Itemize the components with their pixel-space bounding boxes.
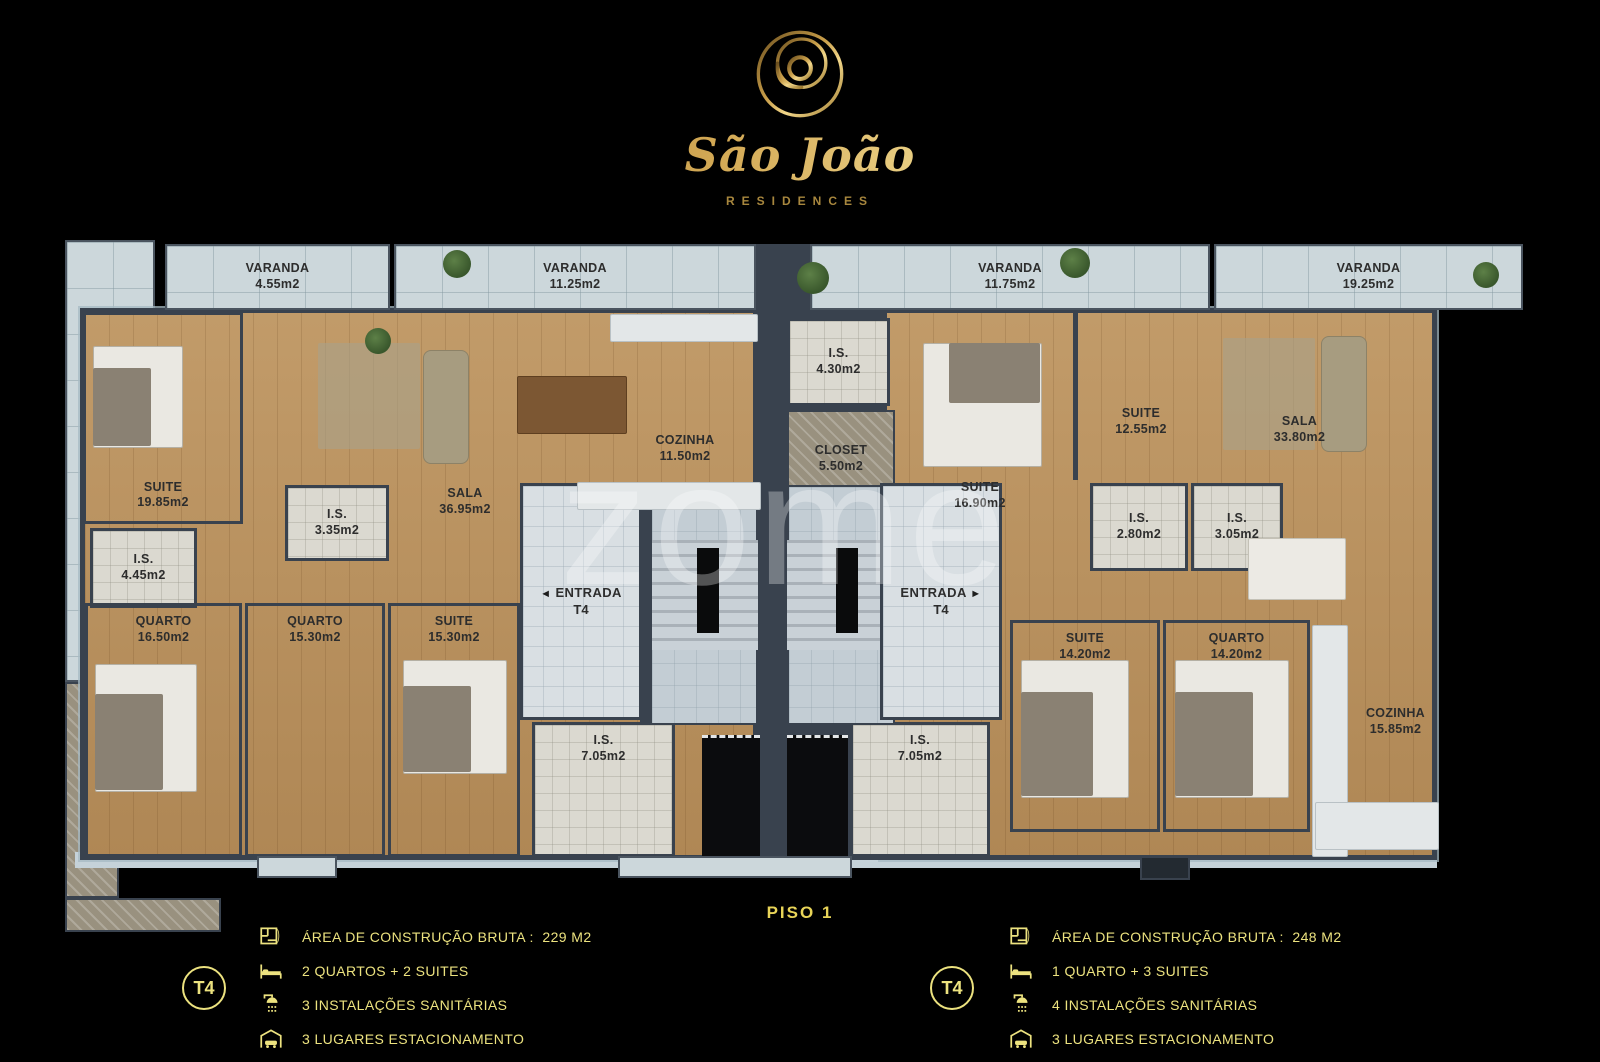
entrance-label: ENTRADA (900, 585, 966, 600)
room-name: SALA (447, 486, 482, 502)
room-is-445: I.S.4.45m2 (90, 528, 197, 608)
bed-icon (1008, 958, 1034, 984)
entrance-unit: T4 (573, 602, 588, 618)
room-area: 7.05m2 (898, 749, 942, 765)
legend-left: ÁREA DE CONSTRUÇÃO BRUTA : 229 M2 2 QUAR… (258, 924, 592, 1060)
bed-blanket (1175, 692, 1253, 796)
legend-text: 2 QUARTOS + 2 SUITES (302, 963, 469, 979)
legend-item: 4 INSTALAÇÕES SANITÁRIAS (1008, 992, 1342, 1018)
room-area: 7.05m2 (581, 749, 625, 765)
room-name: I.S. (829, 346, 849, 362)
dining-table (1248, 538, 1346, 600)
room-name: I.S. (134, 552, 154, 568)
room-area: 11.50m2 (660, 449, 711, 465)
room-area: 16.50m2 (138, 630, 189, 646)
floorplan-icon (1008, 924, 1034, 950)
plant (1060, 248, 1090, 278)
wall (1073, 312, 1078, 480)
entrance-hall-right: ENTRADA ►T4 (880, 483, 1002, 720)
legend-text: ÁREA DE CONSTRUÇÃO BRUTA : 248 M2 (1052, 929, 1342, 945)
room-area: 19.25m2 (1343, 277, 1394, 293)
plant (797, 262, 829, 294)
unit-badge-left: T4 (182, 966, 226, 1010)
room-name: COZINHA (655, 433, 714, 449)
room-name: VARANDA (978, 261, 1042, 277)
shower-icon (1008, 992, 1034, 1018)
room-varanda-455: VARANDA4.55m2 (165, 244, 390, 310)
room-name: VARANDA (1337, 261, 1401, 277)
wardrobe-strip (65, 898, 221, 932)
entrance-hall-left: ◄ ENTRADAT4 (520, 483, 642, 720)
room-name: QUARTO (1209, 631, 1265, 647)
legend-text: 3 LUGARES ESTACIONAMENTO (302, 1031, 524, 1047)
room-name: CLOSET (815, 443, 868, 459)
room-area: 14.20m2 (1211, 647, 1262, 663)
service-tab (1140, 856, 1190, 880)
room-area: 15.30m2 (428, 630, 479, 646)
plant (365, 328, 391, 354)
room-name: I.S. (594, 733, 614, 749)
dining-table (517, 376, 627, 434)
room-name: VARANDA (543, 261, 607, 277)
room-name: I.S. (327, 507, 347, 523)
stair-void (836, 548, 858, 633)
room-area: 5.50m2 (819, 459, 863, 475)
room-name: I.S. (1129, 511, 1149, 527)
room-area: 16.90m2 (954, 496, 1005, 512)
room-area: 14.20m2 (1059, 647, 1110, 663)
brand-name: São João (0, 128, 1600, 182)
room-area: 3.05m2 (1215, 527, 1259, 543)
floor-label: PISO 1 (700, 903, 900, 923)
shower-icon (258, 992, 284, 1018)
bed-icon (258, 958, 284, 984)
garage-icon (258, 1026, 284, 1052)
room-is-430: I.S.4.30m2 (787, 318, 890, 406)
floor-plan: VARANDA4.55m2VARANDA11.25m2VARANDA11.75m… (65, 240, 1523, 862)
legend-item: 3 LUGARES ESTACIONAMENTO (258, 1026, 592, 1052)
room-name: COZINHA (1366, 706, 1425, 722)
legend-text: 4 INSTALAÇÕES SANITÁRIAS (1052, 997, 1257, 1013)
room-cozinha-1150: COZINHA11.50m2 (621, 423, 749, 475)
stair-void (697, 548, 719, 633)
room-area: 12.55m2 (1115, 422, 1166, 438)
plant (1473, 262, 1499, 288)
brand-subtitle: RESIDENCES (0, 194, 1600, 208)
room-area: 15.30m2 (289, 630, 340, 646)
room-area: 33.80m2 (1274, 430, 1325, 446)
sofa (423, 350, 469, 464)
kitchen-counter (1315, 802, 1439, 850)
legend-item: ÁREA DE CONSTRUÇÃO BRUTA : 229 M2 (258, 924, 592, 950)
wall (640, 483, 652, 725)
balcony-tab (618, 856, 852, 878)
sofa (1321, 336, 1367, 452)
room-area: 4.45m2 (121, 568, 165, 584)
room-area: 36.95m2 (439, 502, 490, 518)
room-is-280: I.S.2.80m2 (1090, 483, 1188, 571)
room-area: 19.85m2 (137, 495, 188, 511)
bed-blanket (93, 368, 151, 446)
legend-item: 3 LUGARES ESTACIONAMENTO (1008, 1026, 1342, 1052)
entrance-arrow-icon: ► (970, 588, 981, 600)
floorplan-icon (258, 924, 284, 950)
legend-text: 3 INSTALAÇÕES SANITÁRIAS (302, 997, 507, 1013)
legend-item: ÁREA DE CONSTRUÇÃO BRUTA : 248 M2 (1008, 924, 1342, 950)
room-name: SALA (1282, 414, 1317, 430)
garage-icon (1008, 1026, 1034, 1052)
rug (318, 343, 420, 449)
room-area: 15.85m2 (1370, 722, 1421, 738)
room-name: I.S. (1227, 511, 1247, 527)
room-name: QUARTO (136, 614, 192, 630)
spiral-circle-logo-icon (750, 24, 850, 124)
unit-badge-right: T4 (930, 966, 974, 1010)
bed-blanket (95, 694, 163, 790)
elevator-shaft (787, 735, 848, 857)
legend-text: 3 LUGARES ESTACIONAMENTO (1052, 1031, 1274, 1047)
room-name: SUITE (1066, 631, 1104, 647)
legend-text: ÁREA DE CONSTRUÇÃO BRUTA : 229 M2 (302, 929, 592, 945)
room-name: SUITE (144, 480, 182, 496)
room-name: I.S. (910, 733, 930, 749)
entrance-arrow-icon: ◄ (540, 588, 551, 600)
balcony-tab (257, 856, 337, 878)
room-name: SUITE (435, 614, 473, 630)
entrance-unit: T4 (933, 602, 948, 618)
entrance-label: ENTRADA (555, 585, 621, 600)
room-is-705-right: I.S.7.05m2 (850, 722, 990, 857)
room-area: 11.25m2 (550, 277, 601, 293)
room-sala-3695: SALA36.95m2 (395, 473, 535, 531)
bed-blanket (403, 686, 471, 772)
room-suite-1255: SUITE12.55m2 (1071, 396, 1211, 448)
room-name: QUARTO (287, 614, 343, 630)
kitchen-counter (610, 314, 758, 342)
room-varanda-1175: VARANDA11.75m2 (810, 244, 1210, 310)
plant (443, 250, 471, 278)
room-area: 2.80m2 (1117, 527, 1161, 543)
room-area: 11.75m2 (985, 277, 1036, 293)
legend-item: 2 QUARTOS + 2 SUITES (258, 958, 592, 984)
bed-blanket (1021, 692, 1093, 796)
room-area: 3.35m2 (315, 523, 359, 539)
room-area: 4.30m2 (816, 362, 860, 378)
elevator-shaft (702, 735, 760, 857)
bed-blanket (949, 343, 1040, 403)
room-area: 4.55m2 (255, 277, 299, 293)
kitchen-counter (577, 482, 761, 510)
legend-item: 1 QUARTO + 3 SUITES (1008, 958, 1342, 984)
room-is-335: I.S.3.35m2 (285, 485, 389, 561)
room-quarto-1530: QUARTO15.30m2 (245, 603, 385, 857)
room-name: SUITE (1122, 406, 1160, 422)
page: São João RESIDENCES VARANDA4.55m2VARANDA… (0, 0, 1600, 1062)
room-name: VARANDA (246, 261, 310, 277)
room-is-705-left: I.S.7.05m2 (532, 722, 675, 857)
legend-text: 1 QUARTO + 3 SUITES (1052, 963, 1209, 979)
room-name: SUITE (961, 480, 999, 496)
legend-item: 3 INSTALAÇÕES SANITÁRIAS (258, 992, 592, 1018)
legend-right: ÁREA DE CONSTRUÇÃO BRUTA : 248 M2 1 QUAR… (1008, 924, 1342, 1060)
